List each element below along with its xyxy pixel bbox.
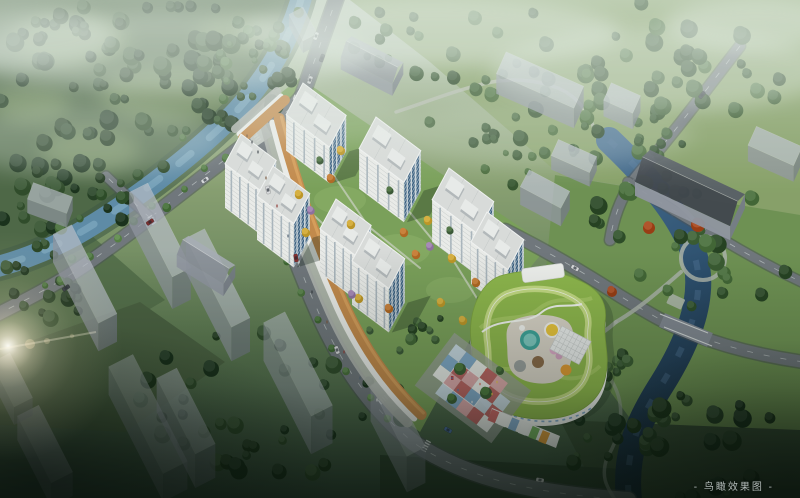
blossom-tree <box>426 242 432 248</box>
autumn-tree <box>347 220 353 226</box>
tree <box>19 211 28 220</box>
tree <box>687 231 697 241</box>
autumn-tree <box>644 221 653 230</box>
tree <box>745 190 756 201</box>
fog-patch <box>395 103 695 167</box>
flare-dot <box>70 334 74 338</box>
tree <box>590 196 603 209</box>
bank-tree <box>114 234 120 240</box>
bank-tree <box>76 215 81 220</box>
autumn-tree <box>400 228 406 234</box>
aerial-rendering <box>0 0 800 498</box>
fog-patch <box>230 94 410 146</box>
tree <box>116 212 126 222</box>
flare-dot <box>44 338 50 344</box>
tree <box>446 226 452 232</box>
blossom-tree <box>307 206 313 212</box>
rendering-canvas: - 鸟瞰效果图 - <box>0 0 800 498</box>
caption-text: - 鸟瞰效果图 - <box>694 478 774 493</box>
autumn-tree <box>424 216 430 222</box>
tree <box>589 214 598 223</box>
bank-tree <box>96 189 104 197</box>
tree <box>674 229 684 239</box>
tree <box>34 221 46 233</box>
tree <box>699 234 712 247</box>
tree <box>17 202 23 208</box>
pedestrian <box>287 234 288 237</box>
pedestrian <box>276 204 277 207</box>
tree <box>104 203 111 210</box>
autumn-tree <box>302 228 308 234</box>
autumn-tree <box>295 190 301 196</box>
flare-dot <box>25 339 35 349</box>
bank-tree <box>163 203 169 209</box>
bank-tree <box>116 191 125 200</box>
tree <box>613 230 622 239</box>
